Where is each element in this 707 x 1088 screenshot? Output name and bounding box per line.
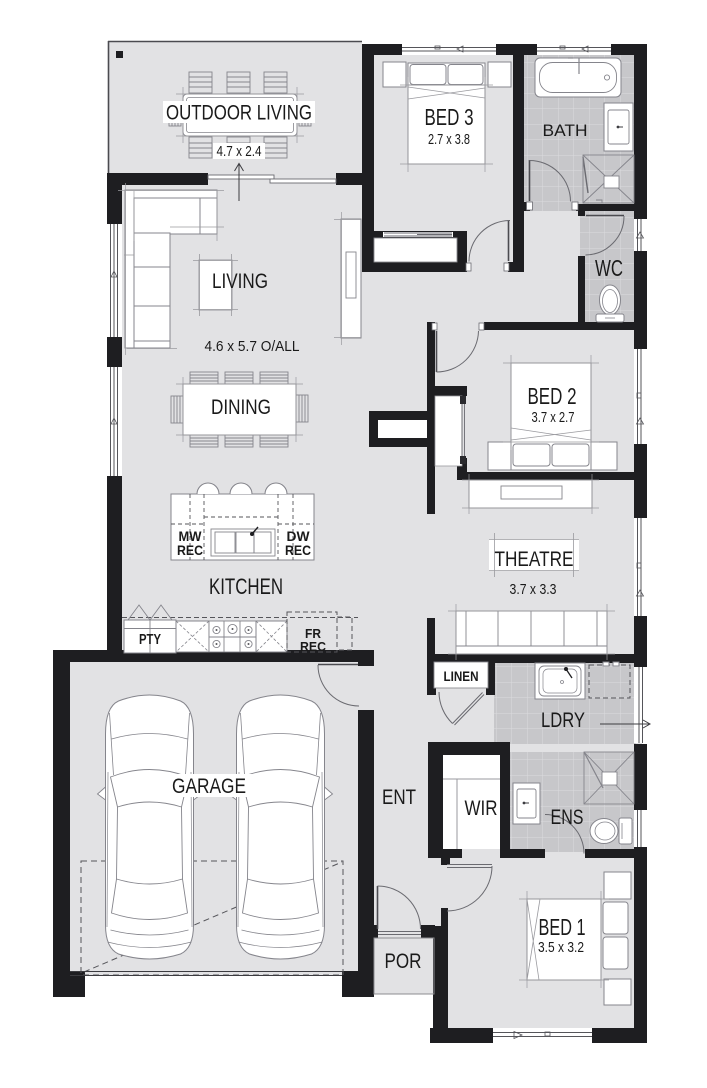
svg-text:ENS: ENS (551, 806, 584, 829)
svg-text:WC: WC (595, 255, 623, 281)
svg-text:ENT: ENT (382, 786, 416, 809)
svg-text:REC: REC (177, 542, 203, 558)
svg-text:PTY: PTY (139, 631, 161, 648)
svg-text:3.7 x 2.7: 3.7 x 2.7 (532, 410, 575, 426)
svg-text:2.7 x 3.8: 2.7 x 3.8 (428, 132, 470, 148)
svg-text:BED 1: BED 1 (539, 914, 586, 940)
svg-text:REC: REC (285, 542, 311, 558)
svg-text:3.5 x 3.2: 3.5 x 3.2 (538, 940, 584, 956)
svg-text:FR: FR (305, 627, 321, 641)
svg-text:OUTDOOR LIVING: OUTDOOR LIVING (166, 102, 312, 125)
svg-text:BED 3: BED 3 (425, 104, 474, 130)
svg-text:4.7 x 2.4: 4.7 x 2.4 (217, 144, 262, 160)
svg-text:DINING: DINING (211, 395, 271, 419)
svg-text:THEATRE: THEATRE (495, 547, 574, 571)
svg-text:LIVING: LIVING (212, 269, 268, 293)
svg-text:REC: REC (300, 640, 326, 654)
svg-text:4.6 x 5.7 O/ALL: 4.6 x 5.7 O/ALL (205, 339, 300, 355)
svg-text:3.7 x 3.3: 3.7 x 3.3 (510, 582, 557, 598)
svg-text:LINEN: LINEN (444, 668, 479, 684)
svg-text:GARAGE: GARAGE (172, 775, 246, 798)
svg-text:BED 2: BED 2 (528, 383, 577, 409)
svg-text:BATH: BATH (543, 121, 588, 140)
svg-text:POR: POR (385, 950, 422, 973)
svg-text:LDRY: LDRY (541, 709, 585, 732)
svg-text:WIR: WIR (465, 797, 498, 820)
svg-text:KITCHEN: KITCHEN (209, 574, 283, 599)
